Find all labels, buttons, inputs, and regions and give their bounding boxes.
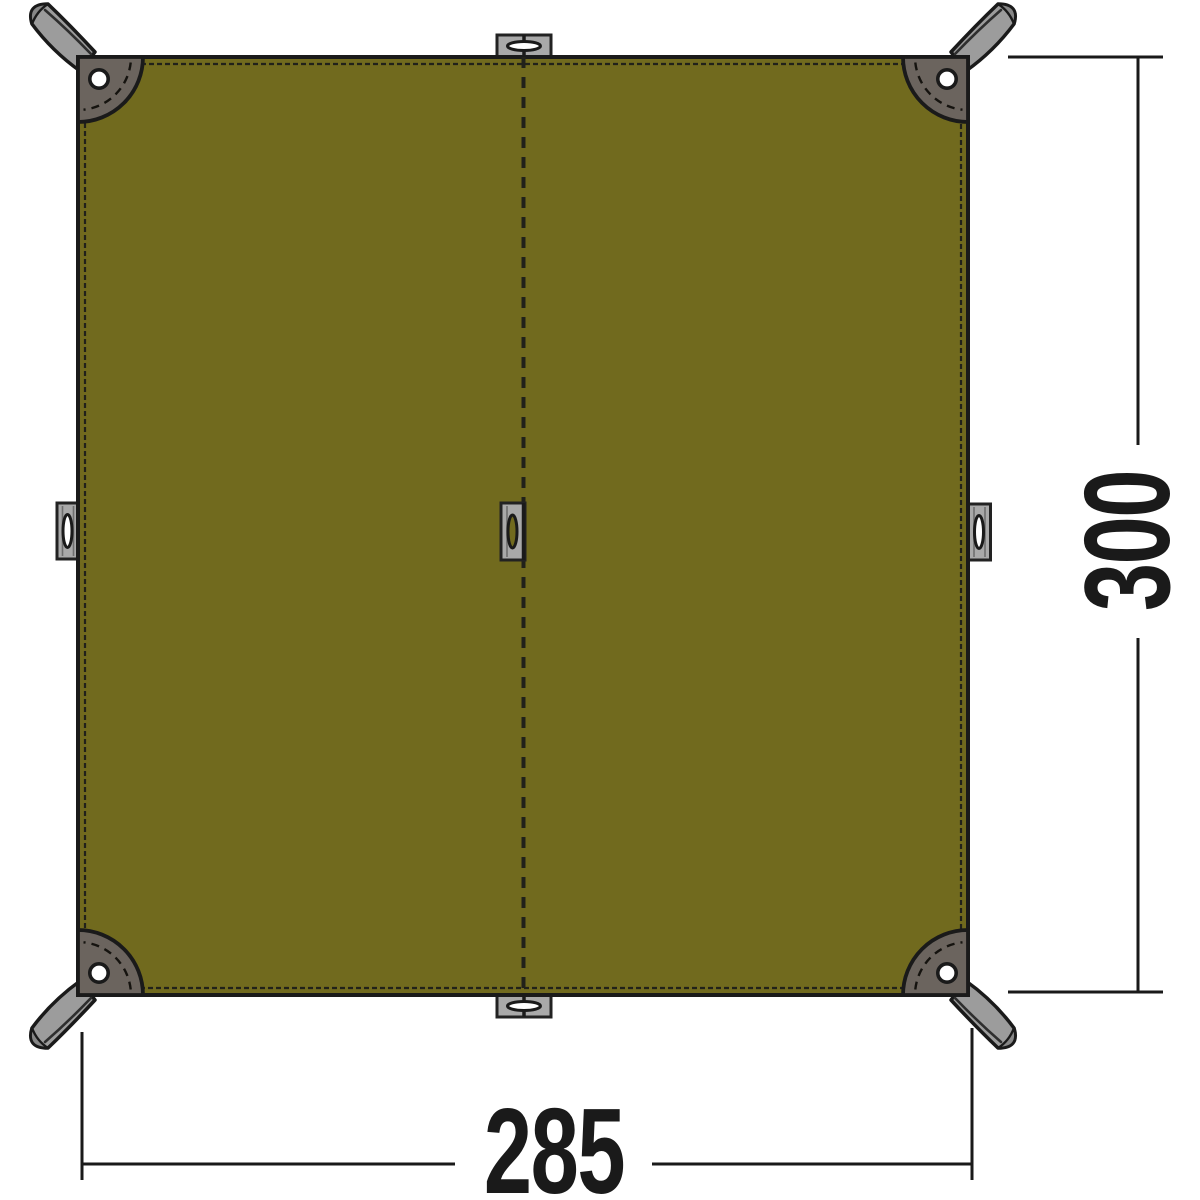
loop-slot xyxy=(508,1002,541,1011)
loop-slot xyxy=(508,515,517,548)
edge-loop-left xyxy=(57,503,79,559)
dimension-width: 285 xyxy=(82,1028,972,1200)
edge-loop-bottom xyxy=(497,995,551,1017)
grommet xyxy=(90,70,108,88)
center-loop xyxy=(501,503,525,560)
edge-loop-right xyxy=(969,504,991,560)
diagram-canvas: 300 285 xyxy=(0,0,1200,1200)
height-value: 300 xyxy=(1059,471,1195,611)
edge-loop-top xyxy=(497,35,551,57)
loop-slot xyxy=(508,42,541,51)
width-value: 285 xyxy=(484,1083,624,1200)
loop-slot xyxy=(63,515,72,548)
grommet xyxy=(90,964,108,982)
dimension-height: 300 xyxy=(1008,57,1196,992)
grommet xyxy=(938,964,956,982)
tarp-diagram: 300 285 xyxy=(0,0,1200,1200)
loop-slot xyxy=(975,516,984,549)
grommet xyxy=(938,70,956,88)
